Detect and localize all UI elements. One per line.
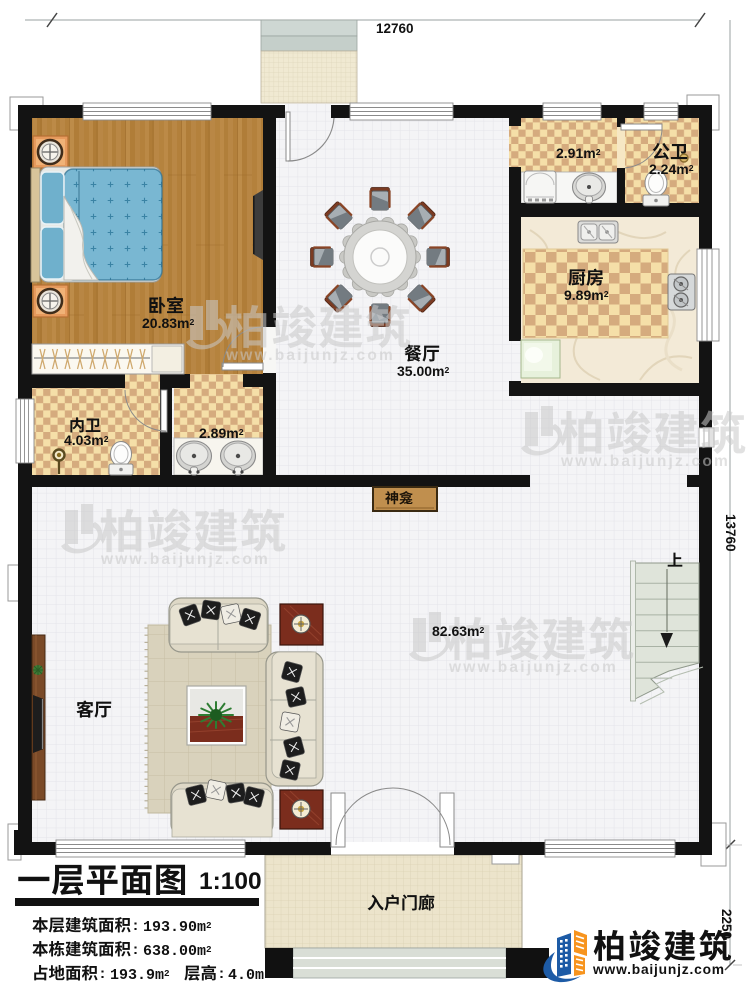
svg-text:20.83m2: 20.83m2	[142, 315, 194, 331]
svg-text:2.91m2: 2.91m2	[556, 145, 601, 161]
svg-text:35.00m2: 35.00m2	[397, 363, 449, 379]
svg-text:www.baijunjz.com: www.baijunjz.com	[592, 962, 725, 977]
svg-text::: :	[100, 965, 105, 982]
svg-text:82.63m2: 82.63m2	[432, 623, 484, 639]
svg-text:1:100: 1:100	[199, 868, 262, 895]
svg-text:12760: 12760	[376, 21, 414, 36]
svg-text:638.00m2: 638.00m2	[143, 943, 212, 960]
svg-text:4.0m: 4.0m	[228, 967, 264, 984]
svg-text:9.89m2: 9.89m2	[564, 287, 609, 303]
svg-text:193.90m2: 193.90m2	[143, 919, 212, 936]
svg-text::: :	[133, 917, 138, 934]
svg-text:13760: 13760	[723, 514, 738, 552]
svg-text:2.89m2: 2.89m2	[199, 425, 244, 441]
svg-text::: :	[133, 941, 138, 958]
svg-text:4.03m2: 4.03m2	[64, 432, 109, 448]
svg-text:2.24m2: 2.24m2	[649, 161, 694, 177]
svg-text::: :	[219, 965, 224, 982]
svg-text:193.9m2: 193.9m2	[110, 967, 170, 984]
